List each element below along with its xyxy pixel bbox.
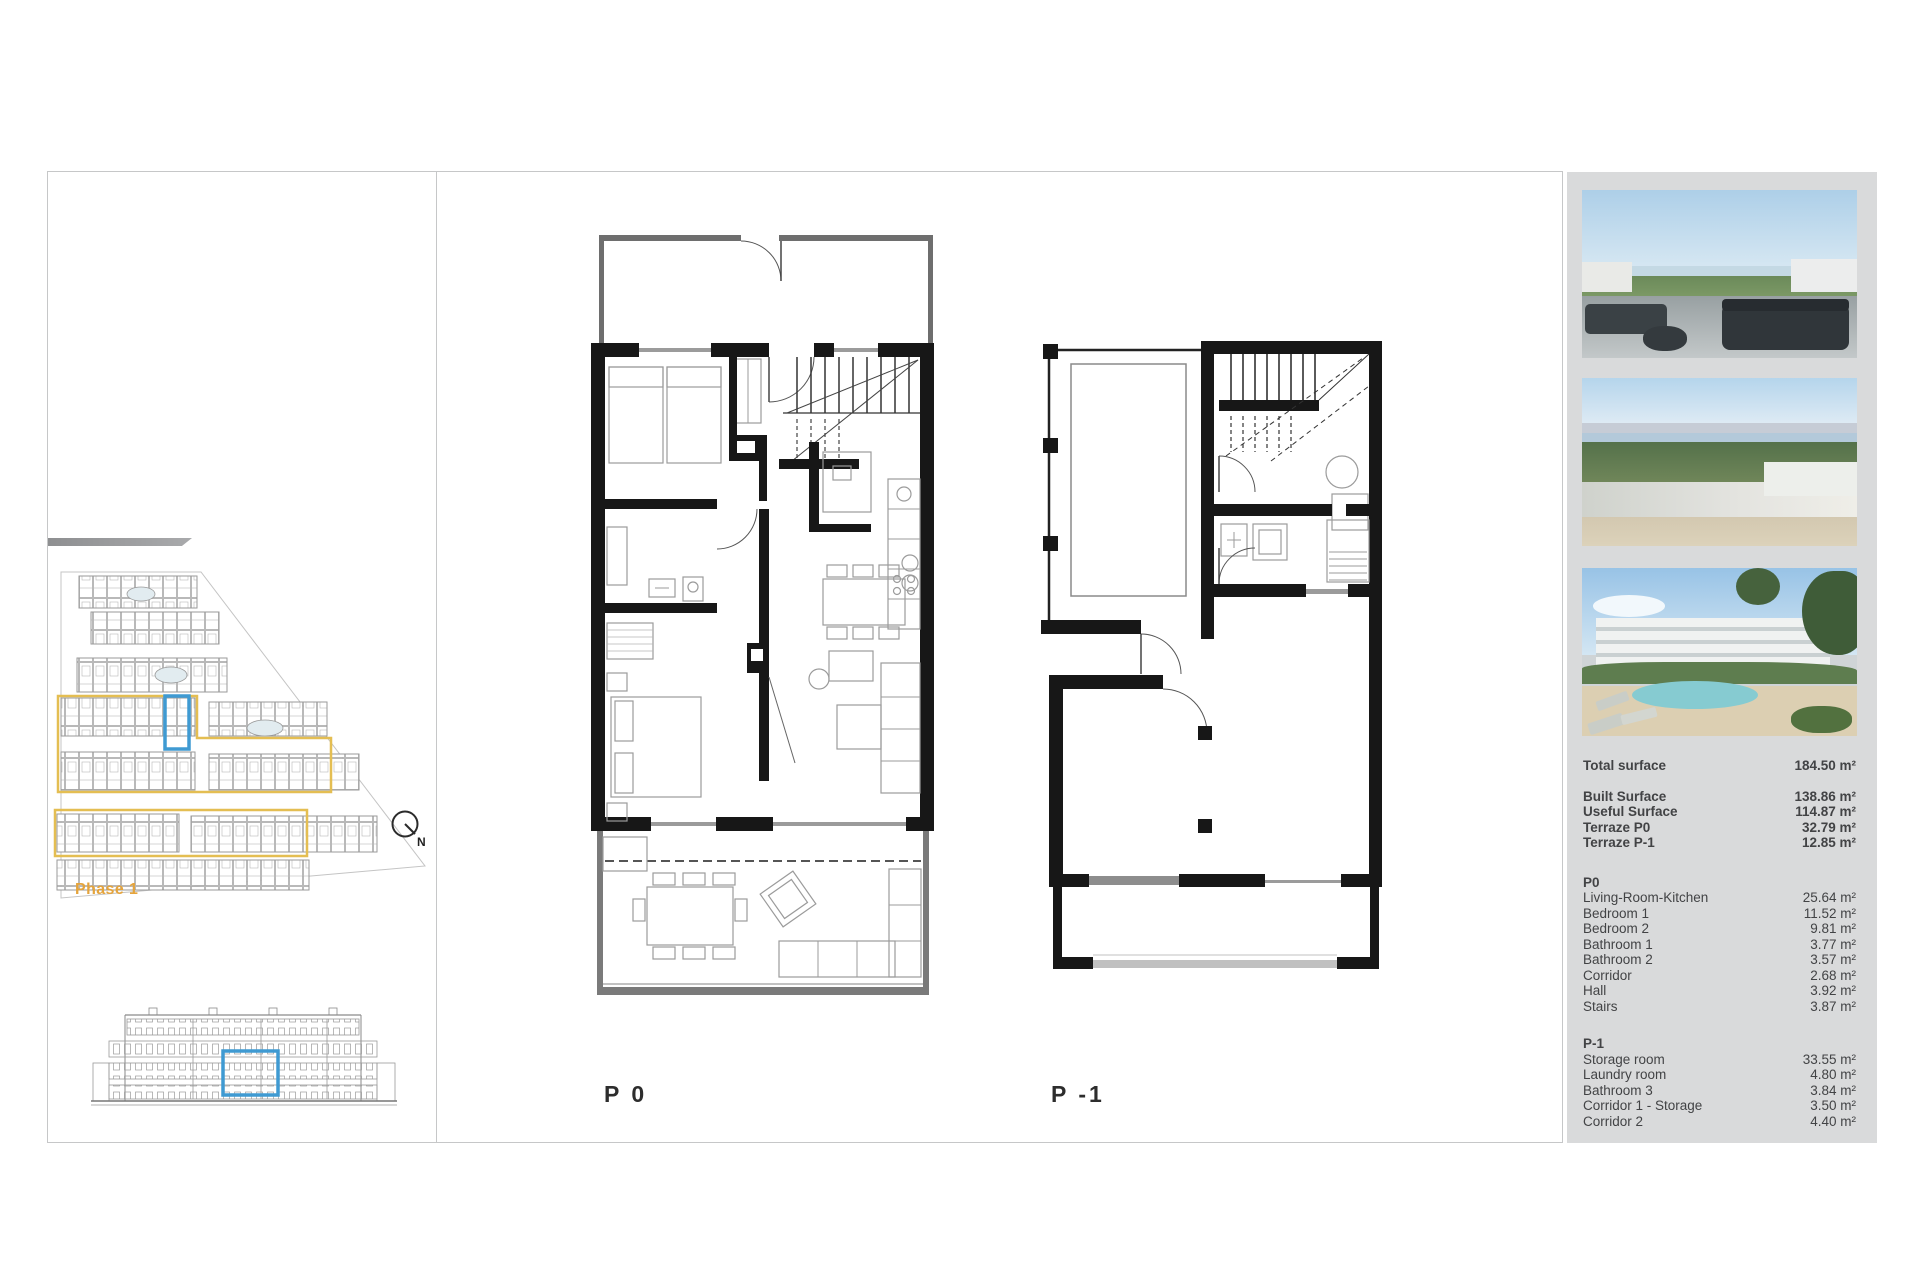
room-row: Bathroom 2 3.57 m² (1583, 952, 1856, 968)
room-value: 25.64 m² (1803, 890, 1856, 906)
row-value: 32.79 m² (1802, 820, 1856, 836)
room-row: Bedroom 2 9.81 m² (1583, 921, 1856, 937)
row-label: Useful Surface (1583, 804, 1678, 820)
phase-label: Phase 1 (75, 881, 138, 899)
room-value: 3.84 m² (1810, 1083, 1856, 1099)
elevation-facade (91, 1008, 397, 1105)
room-label: Corridor 2 (1583, 1114, 1643, 1130)
total-surface-row: Total surface 184.50 m² (1583, 758, 1856, 774)
row-value: 138.86 m² (1794, 789, 1856, 805)
room-value: 9.81 m² (1810, 921, 1856, 937)
p0-master-bedroom (607, 623, 701, 821)
room-label: Hall (1583, 983, 1606, 999)
p0-interior-walls (591, 357, 795, 781)
summary-row: Terraze P-1 12.85 m² (1583, 835, 1856, 851)
total-surface-label: Total surface (1583, 758, 1666, 774)
room-row: Stairs 3.87 m² (1583, 999, 1856, 1015)
p1-corridor (1041, 620, 1207, 887)
p0-bottom-terrace (597, 831, 929, 995)
room-label: Storage room (1583, 1052, 1665, 1068)
elevation-drawing (89, 993, 399, 1108)
total-surface-value: 184.50 m² (1794, 758, 1856, 774)
photo-aerial-view (1582, 378, 1857, 546)
room-row: Corridor 2 4.40 m² (1583, 1114, 1856, 1130)
building-rows (57, 576, 377, 890)
room-label: Corridor (1583, 968, 1632, 984)
room-row: Corridor 2.68 m² (1583, 968, 1856, 984)
p0-living-room (809, 651, 920, 793)
room-label: Laundry room (1583, 1067, 1666, 1083)
compass-north-label: N (417, 835, 426, 849)
row-value: 12.85 m² (1802, 835, 1856, 851)
floor-plan-p-1-label: P -1 (1051, 1081, 1105, 1108)
room-label: Bathroom 1 (1583, 937, 1653, 953)
p0-bathroom (607, 527, 703, 601)
photo-terrace-view (1582, 190, 1857, 358)
room-value: 11.52 m² (1804, 906, 1856, 922)
p1-lower-terrace (1053, 887, 1379, 969)
plan-sheet-card: N Phase 1 (47, 171, 1563, 1143)
p1-bathroom3 (1214, 456, 1382, 530)
room-value: 3.92 m² (1810, 983, 1856, 999)
site-plan-drawing: N (51, 566, 431, 911)
info-panel: Total surface 184.50 m² Built Surface 13… (1567, 172, 1877, 1143)
room-label: Bathroom 2 (1583, 952, 1653, 968)
p1-stairs (1219, 354, 1369, 461)
row-label: Built Surface (1583, 789, 1666, 805)
floor-plan-p-1 (1041, 336, 1391, 1066)
room-value: 2.68 m² (1810, 968, 1856, 984)
row-value: 114.87 m² (1795, 804, 1856, 820)
row-label: Terraze P0 (1583, 820, 1650, 836)
room-label: Bedroom 2 (1583, 921, 1649, 937)
room-row: Corridor 1 - Storage 3.50 m² (1583, 1098, 1856, 1114)
room-value: 3.87 m² (1810, 999, 1856, 1015)
room-label: Bedroom 1 (1583, 906, 1649, 922)
room-value: 4.40 m² (1810, 1114, 1856, 1130)
room-value: 3.57 m² (1810, 952, 1856, 968)
room-row: Bedroom 1 11.52 m² (1583, 906, 1856, 922)
p0-kitchen (809, 442, 920, 629)
divider-swoosh (48, 538, 192, 546)
p1-storage-room (1049, 726, 1382, 887)
surface-summary: Total surface 184.50 m² Built Surface 13… (1583, 758, 1856, 1129)
room-row: Living-Room-Kitchen 25.64 m² (1583, 890, 1856, 906)
room-row: Bathroom 3 3.84 m² (1583, 1083, 1856, 1099)
page: N Phase 1 (0, 0, 1920, 1280)
p-1-section-title: P-1 (1583, 1036, 1856, 1052)
room-row: Laundry room 4.80 m² (1583, 1067, 1856, 1083)
room-value: 4.80 m² (1810, 1067, 1856, 1083)
room-value: 3.77 m² (1810, 937, 1856, 953)
floor-plan-p0 (583, 227, 963, 1017)
p1-laundry (1214, 520, 1382, 597)
summary-row: Terraze P0 32.79 m² (1583, 820, 1856, 836)
room-label: Living-Room-Kitchen (1583, 890, 1708, 906)
room-value: 33.55 m² (1803, 1052, 1856, 1068)
room-value: 3.50 m² (1810, 1098, 1856, 1114)
p0-section-title: P0 (1583, 875, 1856, 891)
room-row: Hall 3.92 m² (1583, 983, 1856, 999)
photo-exterior-pool-view (1582, 568, 1857, 736)
room-label: Stairs (1583, 999, 1618, 1015)
left-section: N Phase 1 (48, 172, 437, 1142)
p1-lightwell (1043, 344, 1201, 620)
summary-row: Built Surface 138.86 m² (1583, 789, 1856, 805)
room-row: Storage room 33.55 m² (1583, 1052, 1856, 1068)
room-label: Bathroom 3 (1583, 1083, 1653, 1099)
p1-walls (1201, 341, 1382, 887)
room-row: Bathroom 1 3.77 m² (1583, 937, 1856, 953)
room-label: Corridor 1 - Storage (1583, 1098, 1702, 1114)
row-label: Terraze P-1 (1583, 835, 1655, 851)
p0-dining (823, 555, 918, 639)
floor-plan-p0-label: P 0 (604, 1081, 647, 1108)
summary-row: Useful Surface 114.87 m² (1583, 804, 1856, 820)
